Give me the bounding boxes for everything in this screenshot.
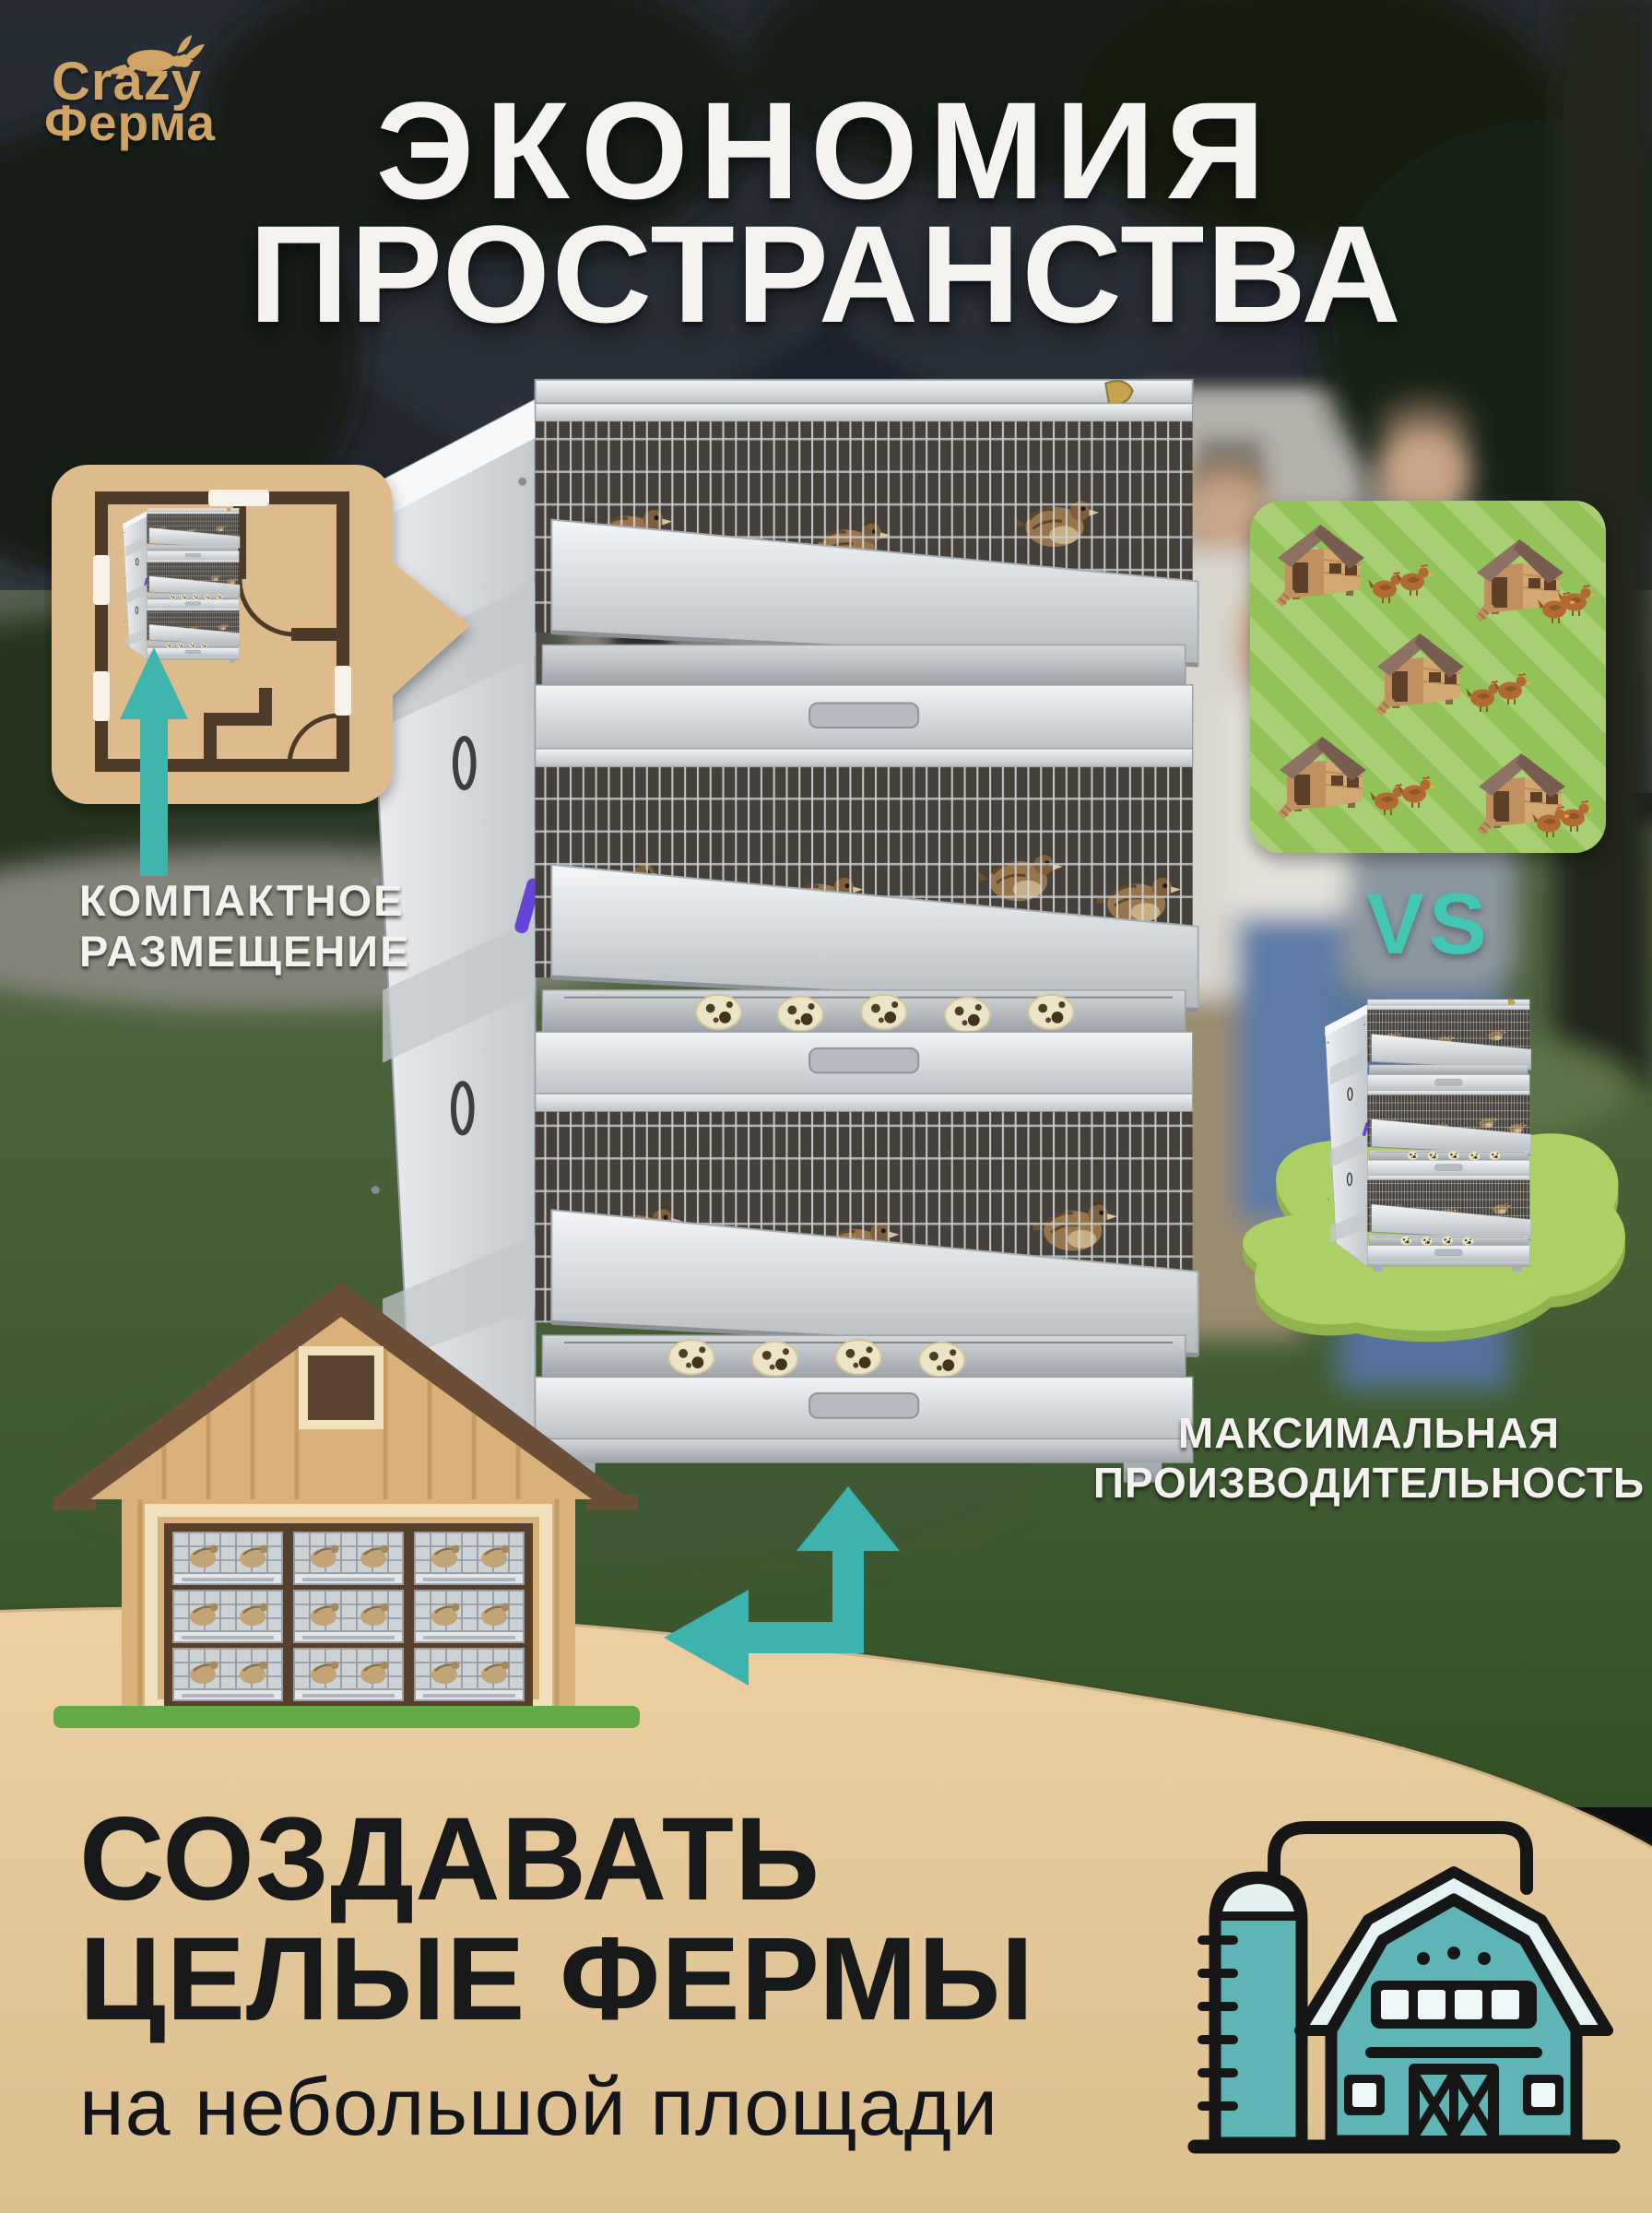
footer-heading: СОЗДАВАТЬ ЦЕЛЫЕ ФЕРМЫ на небольшой площа… <box>79 1800 1034 2154</box>
compact-caption: КОМПАКТНОЕ РАЗМЕЩЕНИЕ <box>79 876 410 977</box>
footer-subheading: на небольшой площади <box>79 2060 1034 2154</box>
productivity-caption: МАКСИМАЛЬНАЯ ПРОИЗВОДИТЕЛЬНОСТЬ <box>1069 1409 1652 1509</box>
vs-label: VS <box>1327 874 1530 974</box>
compact-caption-line2: РАЗМЕЩЕНИЕ <box>79 927 410 977</box>
corner-arrow-icon <box>645 1464 913 1695</box>
barn-illustration <box>53 1274 653 1735</box>
grass-strip <box>53 1706 640 1728</box>
coop-field-panel <box>1250 501 1606 853</box>
productivity-caption-line2: ПРОИЗВОДИТЕЛЬНОСТЬ <box>1069 1459 1652 1509</box>
compact-callout-panel <box>44 454 487 896</box>
barn-cage-grid <box>173 1533 524 1700</box>
small-quail-cage <box>1325 1000 1531 1272</box>
speech-bubble-arrow-shape <box>52 465 470 804</box>
footer-heading-line1: СОЗДАВАТЬ <box>79 1800 1034 1920</box>
footer-heading-line2: ЦЕЛЫЕ ФЕРМЫ <box>79 1920 1034 2040</box>
teal-barn-icon <box>1182 1800 1624 2187</box>
productivity-caption-line1: МАКСИМАЛЬНАЯ <box>1069 1409 1652 1459</box>
promo-poster: Crazy Ферма ЭКОНОМИЯ ПРОСТРАНСТВА <box>0 0 1652 2213</box>
plan-cage-thumbnail <box>123 508 240 663</box>
compact-caption-line1: КОМПАКТНОЕ <box>79 876 410 927</box>
